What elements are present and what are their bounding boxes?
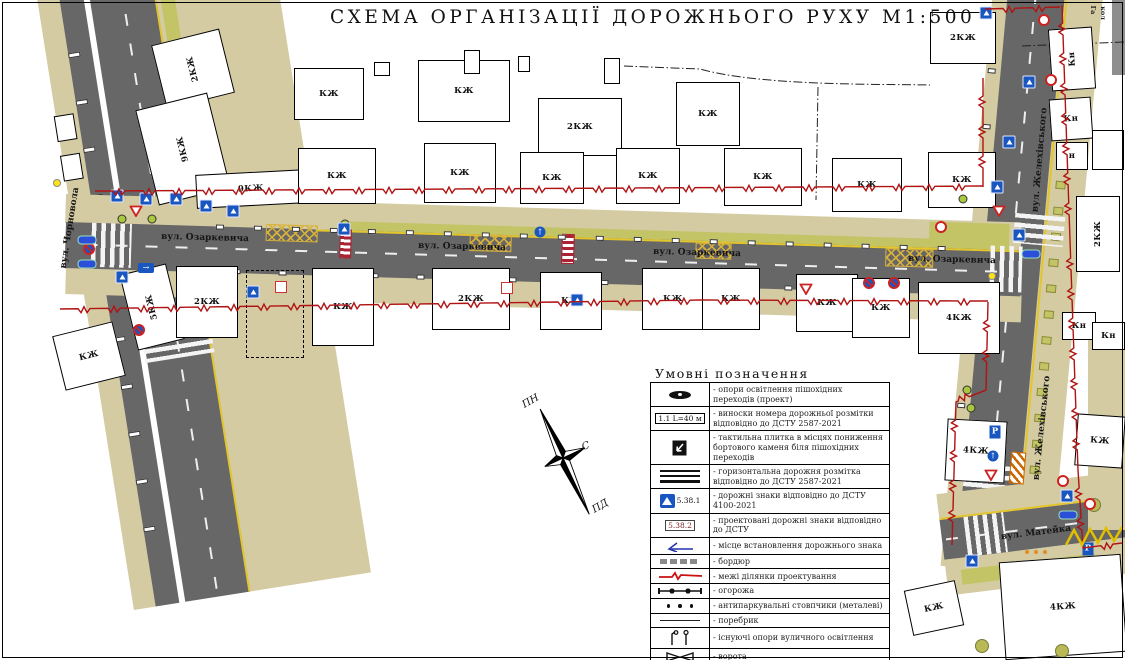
street-nameplate — [1023, 251, 1040, 258]
building-label: 2КЖ — [1093, 221, 1103, 247]
building-outline — [604, 58, 620, 84]
tree-symbol — [975, 639, 989, 653]
building-label: 2КЖ — [458, 294, 484, 304]
building-label: КЖ — [542, 173, 562, 183]
building-label: КЖ — [952, 175, 972, 185]
legend-row: - тактильна плитка в місцях пониження бо… — [651, 430, 889, 464]
pedestrian-crossing-sign — [1013, 229, 1026, 242]
pedestrian-crossing-sign — [227, 205, 240, 218]
building-label: 2КЖ — [567, 122, 593, 132]
parking-sign: Р — [990, 426, 1001, 439]
parking-sign: Р — [1083, 543, 1094, 556]
road-marking-icon — [660, 470, 700, 483]
building-label: н — [1069, 151, 1076, 161]
legend-icon-cell — [651, 569, 710, 583]
give-way-sign — [985, 469, 998, 481]
sign-location-icon — [665, 540, 695, 552]
legend-row: - місце встановлення дорожнього знака — [651, 537, 889, 554]
building-label: КЖ — [319, 89, 339, 99]
pedestrian-crossing-sign — [991, 181, 1004, 194]
compass-east-label: С — [580, 440, 591, 453]
building-2кж: 2КЖ — [176, 266, 238, 338]
mandatory-direction-sign: ↑ — [535, 227, 546, 238]
building-label: 2КЖ — [950, 33, 976, 43]
compass-north-label: ПН — [520, 392, 541, 410]
legend-text: - тактильна плитка в місцях пониження бо… — [710, 431, 889, 464]
building-label: Кн — [1063, 113, 1078, 124]
legend-icon-cell — [651, 383, 710, 406]
legend-text: - межі ділянки проектування — [710, 569, 889, 583]
light-pole-icon — [669, 391, 691, 399]
road-sign-icon: 5.38.1 — [660, 494, 701, 508]
building-label: КЖ — [817, 298, 837, 308]
building-label: Кн — [1101, 331, 1116, 341]
legend-row: - ворота — [651, 648, 889, 660]
light-pole-symbol — [53, 179, 61, 187]
crosswalk-ozarkevycha-west — [91, 223, 132, 268]
legend-row: 1.1 L=40 м- виноски номера дорожньої роз… — [651, 406, 889, 430]
marking-callout-icon: 1.1 L=40 м — [655, 413, 704, 424]
traffic-scheme-drawing: СХЕМА ОРГАНІЗАЦІЇ ДОРОЖНЬОГО РУХУ М1:500 — [0, 0, 1125, 660]
tactile-tile-icon — [672, 440, 689, 456]
legend-icon-cell — [651, 584, 710, 598]
prohibition-sign — [1038, 14, 1050, 26]
prohibition-sign — [935, 221, 947, 233]
building-outline — [374, 62, 390, 76]
give-way-sign — [993, 205, 1006, 217]
give-way-sign — [130, 205, 143, 217]
legend-icon-cell — [651, 431, 710, 464]
building-кн: Кн — [1062, 312, 1096, 340]
gate-icon — [665, 651, 695, 660]
building-кж: КЖ — [676, 82, 740, 146]
pedestrian-crossing-sign — [966, 555, 979, 568]
building-label: КЖ — [721, 294, 741, 304]
legend-text: - горизонтальна дорожня розмітка відпові… — [710, 465, 889, 488]
pedestrian-crossing-sign — [247, 286, 260, 299]
direction-arrow-sign: → — [138, 263, 154, 273]
prohibition-sign — [1084, 498, 1096, 510]
building-label: КЖ — [923, 601, 944, 615]
building-кж: КЖ — [642, 268, 704, 330]
building-label: 4КЖ — [1050, 601, 1077, 613]
building-н: н — [1056, 142, 1088, 170]
legend-text: - місце встановлення дорожнього знака — [710, 538, 889, 554]
curb-icon — [660, 559, 700, 564]
mandatory-direction-sign: ↑ — [988, 451, 999, 462]
legend-row: 5.38.2- проектовані дорожні знаки відпов… — [651, 513, 889, 537]
building-кж: КЖ — [424, 143, 496, 203]
legend-text: - дорожні знаки відповідно до ДСТУ 4100-… — [710, 489, 889, 512]
legend-icon-cell — [651, 649, 710, 660]
building-label: КЖ — [871, 303, 891, 313]
plastic-bollard-symbol — [1043, 550, 1047, 554]
tree-symbol — [959, 195, 968, 204]
legend-text: - огорожа — [710, 584, 889, 598]
building-label: 2КЖ — [194, 297, 220, 307]
building-кн: Кн — [1049, 97, 1094, 142]
building-label: 4КЖ — [963, 445, 989, 456]
street-nameplate — [79, 237, 96, 244]
no-stopping-sign — [133, 324, 145, 336]
compass-south-label: ПД — [590, 498, 610, 516]
building-label: Кн — [1066, 51, 1077, 66]
building-label: 9КЖ — [238, 183, 264, 194]
legend-row: - існуючі опори вуличного освітлення — [651, 627, 889, 648]
legend-icon-cell: 5.38.2 — [651, 514, 710, 537]
legend-text: - поребрик — [710, 614, 889, 628]
light-pole-symbol — [988, 272, 996, 280]
legend-text: - виноски номера дорожньої розмітки відп… — [710, 407, 889, 430]
pedestrian-crossing-sign — [1003, 136, 1016, 149]
legend-row: - бордюр — [651, 554, 889, 569]
building-label: КЖ — [450, 168, 470, 178]
building-label: КЖ — [327, 171, 347, 181]
pedestrian-crossing-sign — [1023, 76, 1036, 89]
building-2кж: 2КЖ — [538, 98, 622, 156]
prohibition-sign — [1045, 74, 1057, 86]
building-кж: КЖ — [724, 148, 802, 206]
legend-text: - опори освітлення пішохідних переходів … — [710, 383, 889, 406]
legend-row: - опори освітлення пішохідних переходів … — [651, 383, 889, 406]
street-nameplate — [79, 261, 96, 268]
building-кж: КЖ — [702, 268, 760, 330]
legend-title: Умовні позначення — [652, 366, 812, 381]
building-2кж: 2КЖ — [432, 268, 510, 330]
pedestrian-crossing-sign — [170, 193, 183, 206]
no-stopping-sign — [888, 277, 900, 289]
no-stopping-sign — [83, 243, 95, 255]
building-кж: КЖ — [1074, 413, 1125, 468]
building-кж: КЖ — [298, 148, 376, 204]
building-кж: КЖ — [312, 268, 374, 346]
street-lights-icon — [667, 630, 693, 646]
building-label: КЖ — [638, 171, 658, 181]
edge-curb-icon — [660, 620, 700, 622]
building-4кж: 4КЖ — [918, 282, 1000, 354]
legend-icon-cell — [651, 465, 710, 488]
tree-symbol — [967, 404, 976, 413]
building-кж: КЖ — [832, 158, 902, 212]
projected-sign-box — [501, 282, 513, 294]
pedestrian-crossing-sign — [116, 271, 129, 284]
pedestrian-crossing-sign — [200, 200, 213, 213]
building-кж: КЖ — [294, 68, 364, 120]
pedestrian-crossing-sign — [111, 190, 124, 203]
map-annotation-label: Га — [1089, 6, 1097, 15]
building-кн: Кн — [1092, 322, 1125, 350]
legend-icon-cell — [651, 614, 710, 628]
building-label: 2КЖ — [185, 55, 201, 83]
legend-text: - антипаркувальні стовпчики (металеві) — [710, 599, 889, 613]
building-label: КЖ — [663, 294, 683, 304]
legend-row: 5.38.1- дорожні знаки відповідно до ДСТУ… — [651, 488, 889, 512]
pedestrian-crossing-sign — [140, 193, 153, 206]
projected-sign-box — [275, 281, 287, 293]
projected-sign-icon: 5.38.2 — [665, 520, 695, 531]
pedestrian-crossing-sign — [338, 223, 351, 236]
tree-symbol — [963, 386, 972, 395]
legend-icon-cell: 5.38.1 — [651, 489, 710, 512]
legend-text: - ворота — [710, 649, 889, 660]
legend-table: - опори освітлення пішохідних переходів … — [650, 382, 890, 660]
tree-symbol — [118, 215, 127, 224]
prohibition-sign — [1057, 475, 1069, 487]
building-label: КЖ — [857, 180, 877, 190]
tree-symbol — [148, 215, 157, 224]
plastic-bollard-symbol — [1034, 550, 1038, 554]
building-outline — [464, 50, 480, 74]
pedestrian-crossing-sign — [571, 294, 584, 307]
plastic-bollard-symbol — [1025, 550, 1029, 554]
legend-row: - огорожа — [651, 583, 889, 598]
legend-icon-cell — [651, 555, 710, 569]
project-boundary-icon — [658, 571, 702, 581]
building-label: КЖ — [78, 349, 100, 363]
legend-row: - поребрик — [651, 613, 889, 628]
legend-text: - існуючі опори вуличного освітлення — [710, 628, 889, 648]
legend-row: - антипаркувальні стовпчики (металеві) — [651, 598, 889, 613]
legend-text: - проектовані дорожні знаки відповідно д… — [710, 514, 889, 537]
legend-icon-cell: 1.1 L=40 м — [651, 407, 710, 430]
give-way-sign — [800, 283, 813, 295]
legend-icon-cell — [651, 538, 710, 554]
building-label: КЖ — [753, 172, 773, 182]
fence-icon — [658, 587, 702, 595]
no-stopping-sign — [863, 277, 875, 289]
building-label: Кн — [1072, 321, 1087, 331]
metal-bollards-icon — [667, 604, 694, 608]
legend-text: - бордюр — [710, 555, 889, 569]
building-outline — [1092, 130, 1124, 170]
pedestrian-crossing-sign — [980, 7, 993, 20]
building-label: КЖ — [698, 109, 718, 119]
building-кж: КЖ — [616, 148, 680, 204]
building-label: КЖ — [333, 302, 353, 312]
legend-row: - межі ділянки проектування — [651, 568, 889, 583]
building-label: КЖ — [454, 86, 474, 96]
building-label: 9КЖ — [175, 135, 191, 163]
building-кж: КЖ — [520, 152, 584, 204]
street-nameplate — [1060, 512, 1077, 519]
tree-symbol — [1055, 644, 1069, 658]
page-title: СХЕМА ОРГАНІЗАЦІЇ ДОРОЖНЬОГО РУХУ М1:500 — [330, 7, 890, 28]
building-label: 4КЖ — [946, 313, 972, 323]
building-label: 5КЖ — [144, 293, 160, 321]
map-annotation-label: кол — [1099, 6, 1107, 20]
building-2кж: 2КЖ — [1076, 196, 1120, 272]
legend: Умовні позначення - опори освітлення піш… — [650, 363, 890, 660]
building-кж: КЖ — [852, 278, 910, 338]
legend-icon-cell — [651, 599, 710, 613]
pedestrian-crossing-sign — [1061, 490, 1074, 503]
building-label: КЖ — [1090, 435, 1110, 446]
building-outline — [518, 56, 530, 72]
legend-row: - горизонтальна дорожня розмітка відпові… — [651, 464, 889, 488]
legend-icon-cell — [651, 628, 710, 648]
